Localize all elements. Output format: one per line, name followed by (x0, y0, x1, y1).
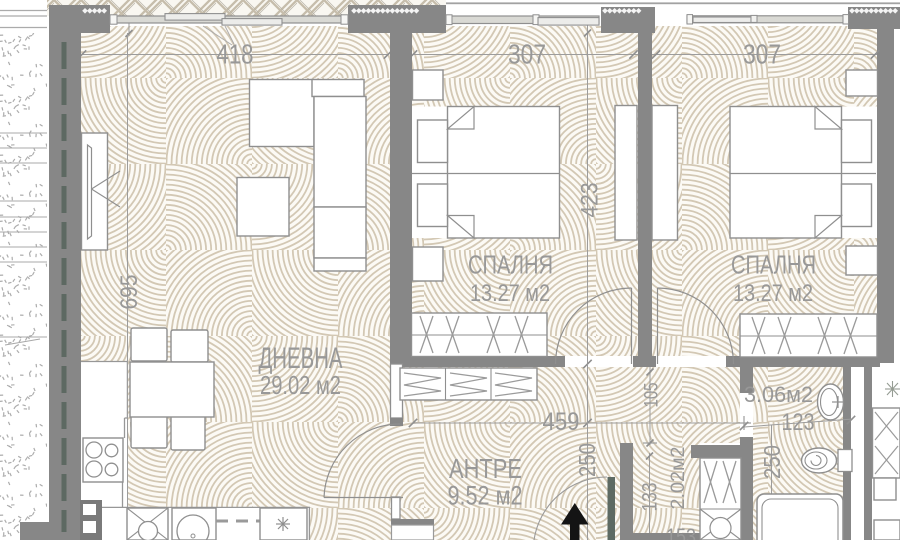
svg-text:459: 459 (543, 408, 580, 436)
svg-text:695: 695 (116, 275, 143, 310)
svg-text:29.02 м2: 29.02 м2 (260, 370, 341, 400)
svg-text:9.52 м2: 9.52 м2 (448, 481, 523, 511)
svg-text:133: 133 (639, 483, 662, 512)
svg-text:250: 250 (759, 445, 785, 479)
svg-text:13.27 м2: 13.27 м2 (733, 280, 813, 307)
svg-text:418: 418 (217, 39, 254, 70)
svg-text:13.27 м2: 13.27 м2 (470, 280, 550, 307)
svg-text:АНТРЕ: АНТРЕ (449, 453, 522, 484)
svg-text:307: 307 (508, 39, 546, 70)
svg-text:2.02м2: 2.02м2 (668, 447, 689, 510)
svg-text:105: 105 (642, 383, 663, 408)
svg-text:3.06м2: 3.06м2 (744, 382, 813, 407)
svg-text:250: 250 (574, 443, 600, 477)
svg-text:123: 123 (782, 409, 815, 436)
svg-text:423: 423 (577, 183, 604, 218)
svg-text:СПАЛНЯ: СПАЛНЯ (731, 250, 816, 280)
svg-text:153: 153 (666, 524, 696, 540)
svg-text:307: 307 (743, 39, 781, 70)
svg-text:СПАЛНЯ: СПАЛНЯ (468, 250, 553, 280)
